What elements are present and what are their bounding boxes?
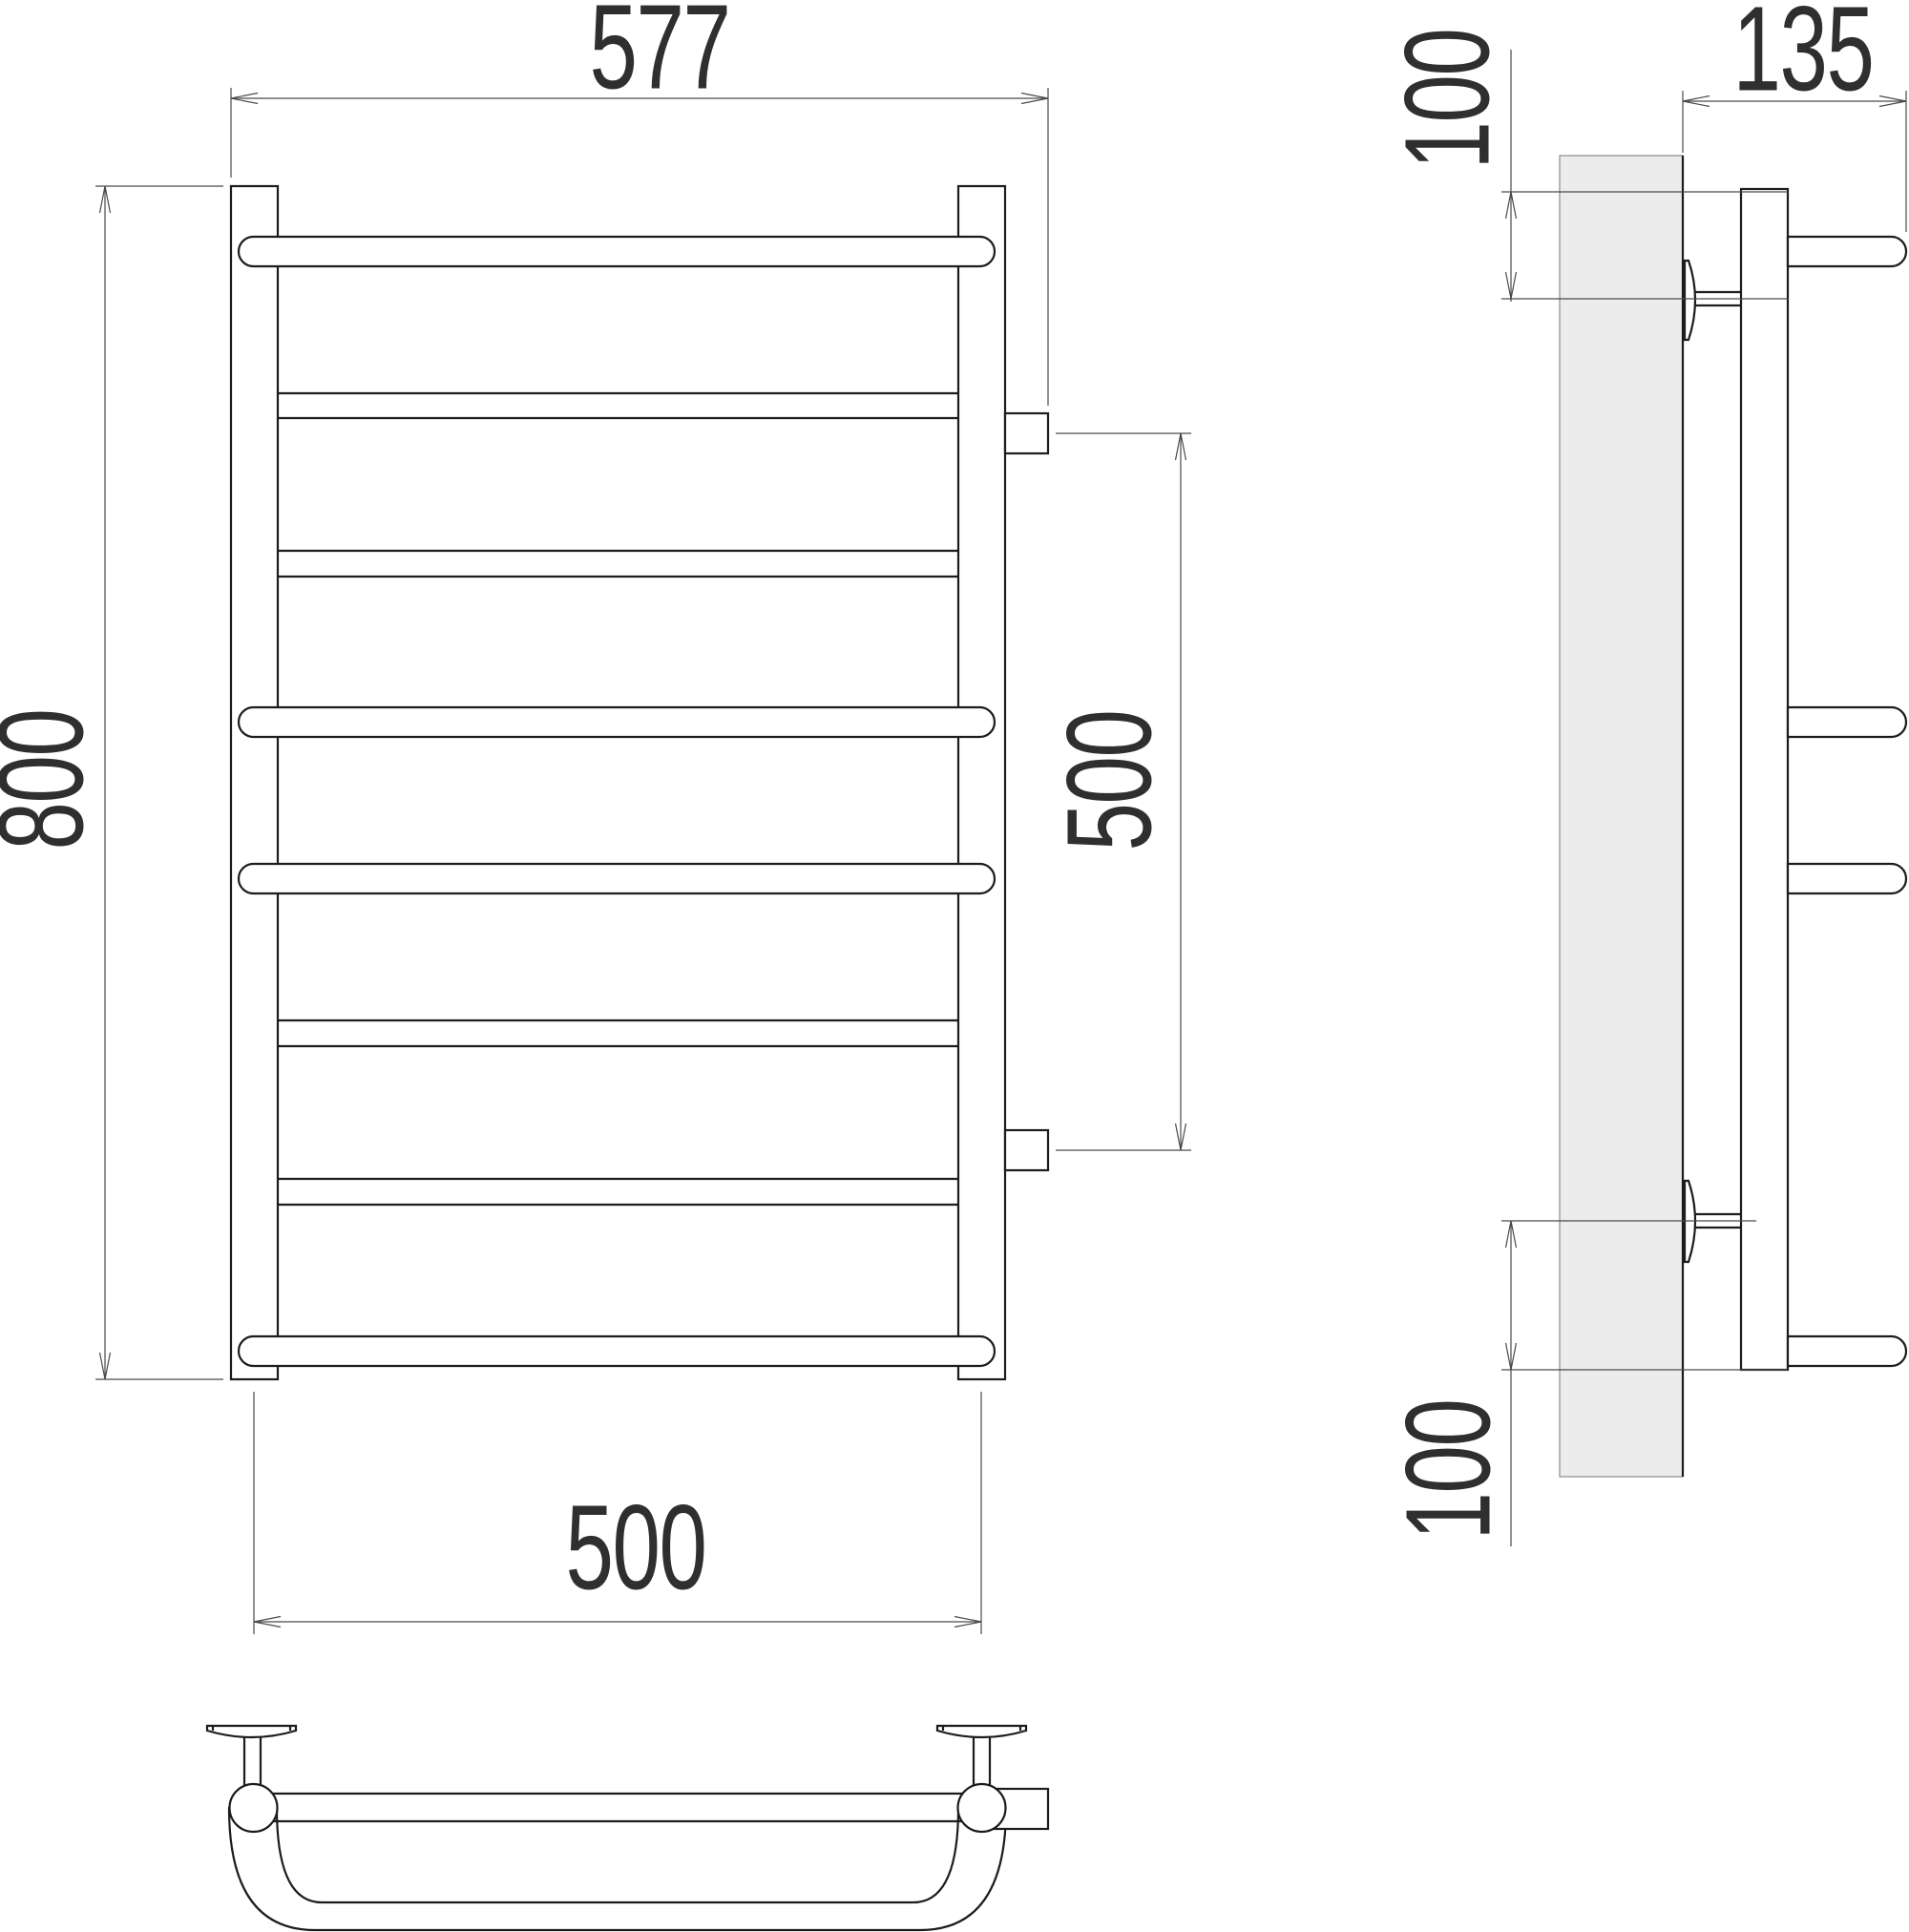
curved-bottom-bar: [229, 1808, 1006, 1930]
rounded-bar: [239, 1336, 995, 1366]
upper-mounting-bracket: [1685, 261, 1741, 340]
right-bracket-below: [937, 1726, 1026, 1785]
dim-label-overall-width: 577: [589, 0, 729, 115]
straight-bar-below: [253, 1794, 983, 1821]
bar-end-pipe: [1788, 864, 1906, 893]
drawing-canvas: 577 135 100 800 500 500 100: [0, 0, 1909, 1932]
bracket-flange: [1685, 261, 1695, 340]
dim-label-overall-height: 800: [0, 709, 109, 850]
straight-bars: [278, 393, 958, 1205]
dim-label-axle-spacing: 500: [565, 1481, 705, 1615]
dim-label-depth: 135: [1732, 0, 1873, 116]
bracket-plate: [937, 1726, 1026, 1737]
bracket-stem: [974, 1736, 990, 1785]
bracket-plate: [207, 1726, 296, 1737]
side-post: [1741, 189, 1788, 1370]
straight-bar: [278, 1020, 958, 1046]
side-view: [1560, 156, 1906, 1477]
straight-bar: [278, 1179, 958, 1205]
upper-connection-stub: [1005, 413, 1048, 453]
bar-end-pipe: [1788, 707, 1906, 737]
straight-bar: [278, 551, 958, 577]
wall-section: [1560, 156, 1683, 1477]
lower-connection-stub: [1005, 1130, 1048, 1170]
left-post: [231, 186, 278, 1379]
straight-bar: [278, 393, 958, 418]
towel-rail-drawing: 577 135 100 800 500 500 100: [0, 0, 1909, 1932]
dim-overall-height: [95, 186, 223, 1379]
bottom-view: [207, 1726, 1048, 1930]
dim-label-bottom-offset: 100: [1382, 1399, 1516, 1540]
front-view: [231, 186, 1048, 1379]
left-bracket-below: [207, 1726, 296, 1785]
rounded-bar: [239, 237, 995, 266]
bar-end-pipe: [1788, 1336, 1906, 1366]
rounded-bar: [239, 707, 995, 737]
bracket-stem: [244, 1736, 261, 1785]
bar-end-pipe: [1788, 237, 1906, 266]
bar-end-pipes: [1788, 237, 1906, 1366]
rounded-bar: [239, 864, 995, 893]
post-end-circle: [958, 1784, 1006, 1832]
dim-label-top-offset: 100: [1381, 29, 1515, 169]
dim-label-connection-spacing: 500: [1043, 710, 1177, 850]
rounded-bars: [239, 237, 995, 1366]
post-end-circle: [230, 1784, 278, 1832]
right-post: [958, 186, 1005, 1379]
